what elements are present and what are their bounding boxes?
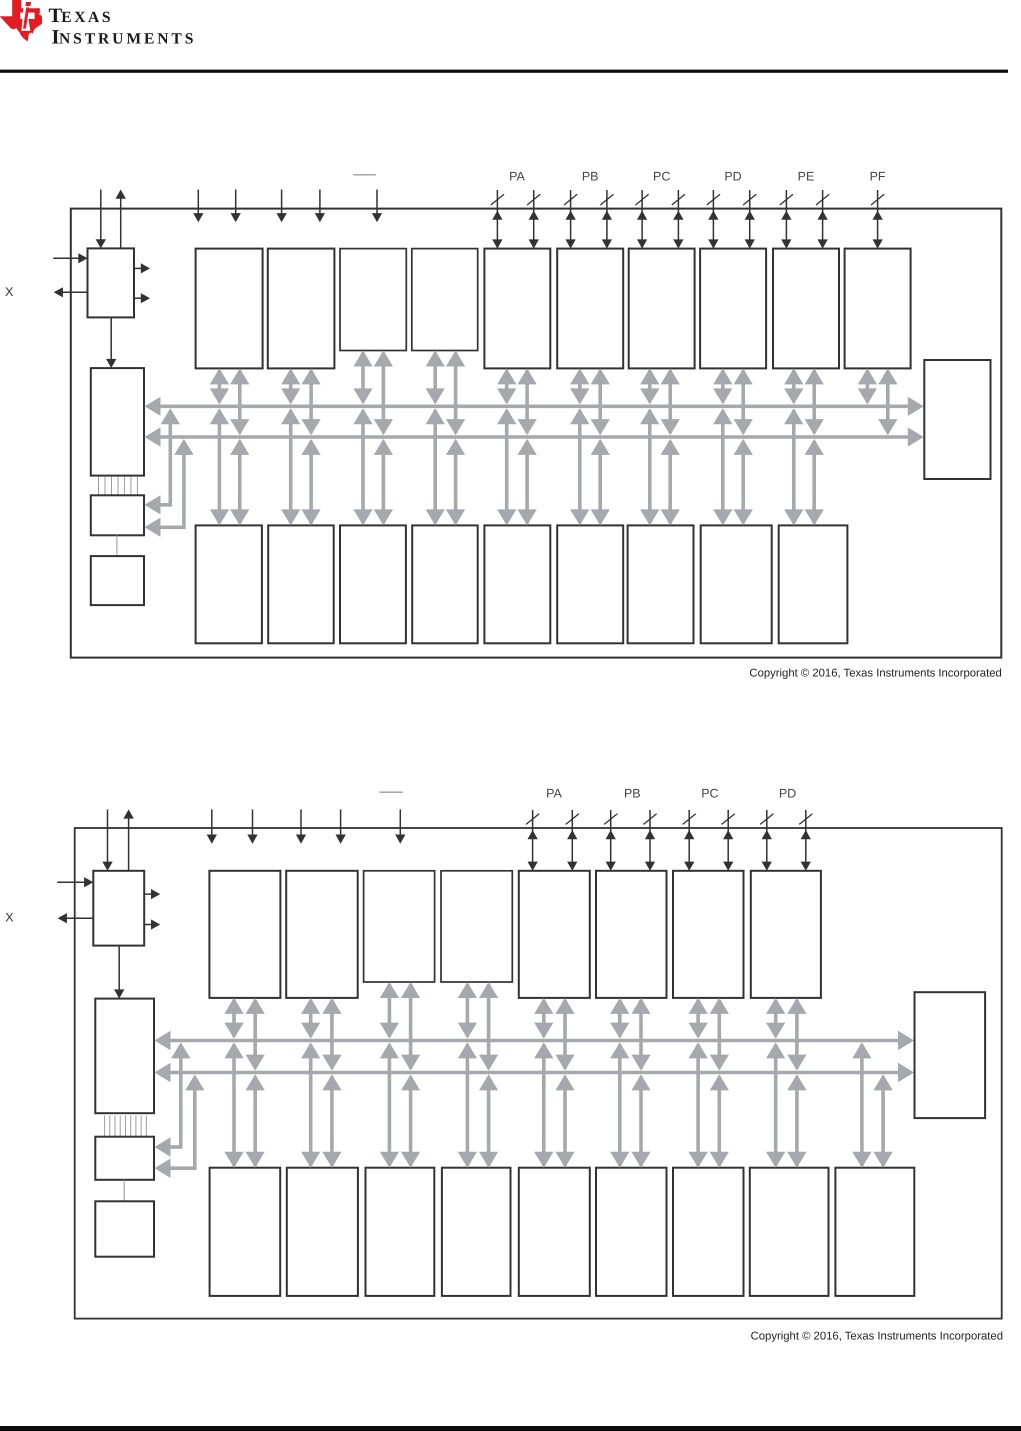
svg-text:PD: PD: [779, 787, 796, 801]
svg-text:PC: PC: [701, 787, 718, 801]
svg-text:Copyright © 2016, Texas Instru: Copyright © 2016, Texas Instruments Inco…: [751, 1330, 1003, 1342]
svg-text:PB: PB: [624, 787, 641, 801]
svg-text:INSTRUMENTS: INSTRUMENTS: [52, 27, 197, 49]
svg-text:PA: PA: [509, 170, 525, 184]
svg-text:PE: PE: [798, 170, 815, 184]
svg-text:PF: PF: [870, 170, 886, 184]
svg-text:PC: PC: [653, 170, 670, 184]
svg-text:X: X: [5, 911, 14, 925]
svg-text:Copyright © 2016, Texas Instru: Copyright © 2016, Texas Instruments Inco…: [749, 667, 1001, 679]
svg-text:X: X: [5, 285, 14, 299]
svg-text:PB: PB: [582, 170, 599, 184]
svg-text:PA: PA: [546, 787, 562, 801]
svg-text:PD: PD: [724, 170, 741, 184]
svg-text:TEXAS: TEXAS: [49, 5, 114, 27]
